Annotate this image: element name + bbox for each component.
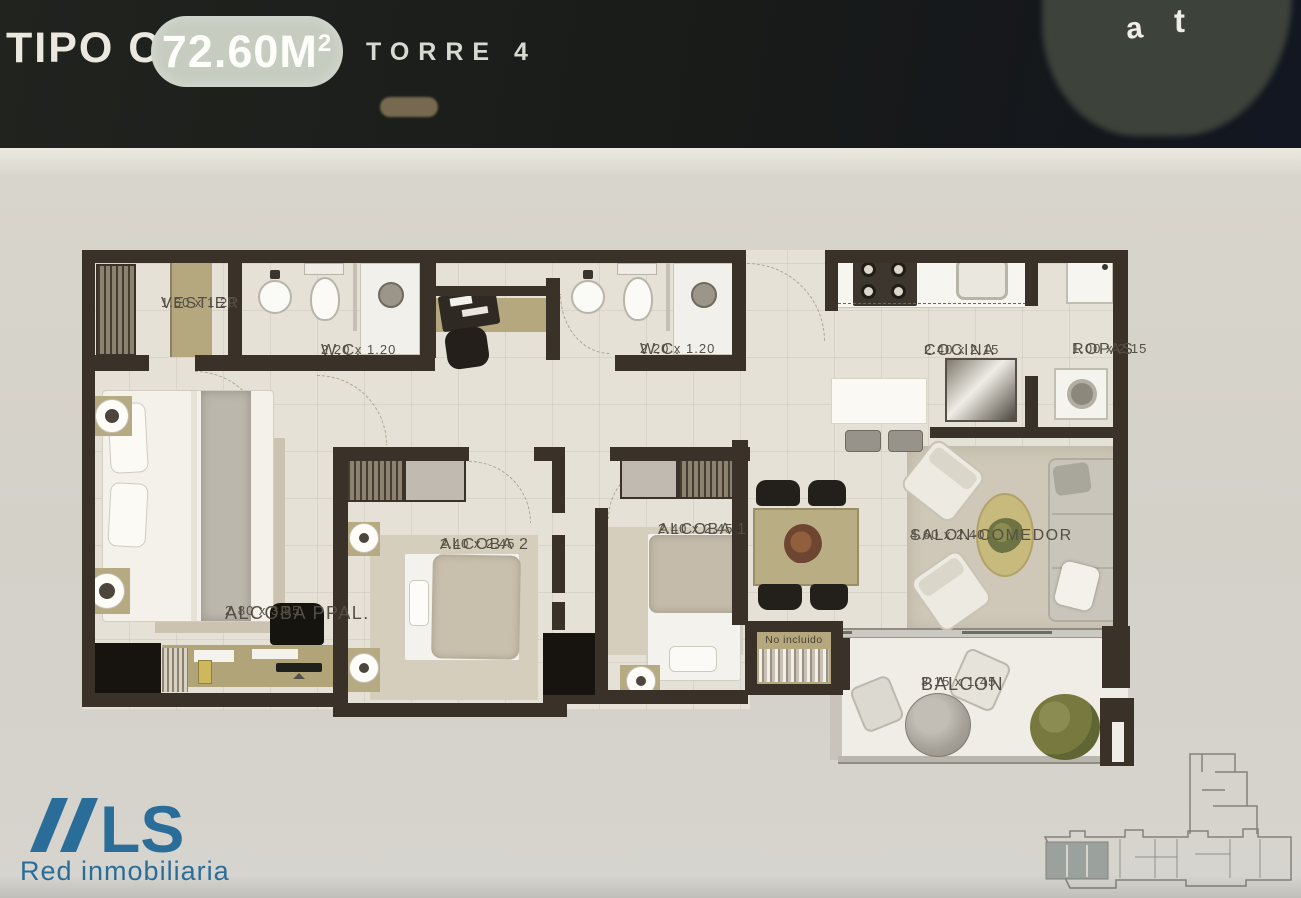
faucet bbox=[583, 270, 593, 279]
shower-head bbox=[378, 282, 404, 308]
plant bbox=[1030, 694, 1100, 760]
dining-chair bbox=[758, 584, 802, 610]
bed-blanket bbox=[649, 535, 739, 613]
book-spines bbox=[759, 649, 829, 682]
bed-blanket bbox=[201, 391, 251, 621]
wall bbox=[552, 535, 565, 593]
lamp bbox=[350, 524, 378, 552]
sofa-seam bbox=[1052, 513, 1120, 515]
balcony-railing bbox=[838, 756, 1128, 764]
dining-chair bbox=[810, 584, 848, 610]
smudge-mark bbox=[380, 97, 438, 117]
washing-machine bbox=[1054, 368, 1108, 420]
area-badge: 72.60M2 bbox=[151, 16, 343, 87]
wall bbox=[552, 447, 565, 513]
fridge bbox=[945, 358, 1017, 422]
wall bbox=[82, 250, 95, 707]
wall bbox=[732, 250, 746, 370]
pillow bbox=[669, 646, 717, 672]
gold-object bbox=[198, 660, 212, 684]
kitchen-sink bbox=[956, 258, 1008, 300]
wall bbox=[1038, 427, 1124, 438]
kitchen-table bbox=[831, 378, 927, 424]
bed-fold bbox=[191, 391, 197, 621]
toilet bbox=[310, 277, 340, 321]
wall bbox=[1025, 376, 1038, 438]
wall bbox=[195, 355, 435, 371]
brochure-photo: TIPO C 72.60M2 TORRE 4 a t bbox=[0, 0, 1301, 898]
dining-chair bbox=[756, 480, 800, 506]
wall bbox=[552, 602, 565, 630]
area-superscript: 2 bbox=[318, 30, 332, 57]
wall bbox=[420, 286, 552, 296]
lamp bbox=[90, 574, 124, 608]
wall bbox=[1102, 626, 1130, 688]
sink bbox=[258, 280, 292, 314]
lamp bbox=[96, 400, 128, 432]
wall bbox=[930, 427, 1026, 438]
wall-niche bbox=[1112, 722, 1124, 762]
glass-door-handle bbox=[962, 631, 1052, 634]
table-centerpiece bbox=[784, 524, 822, 564]
washer-door bbox=[1067, 379, 1097, 409]
burner bbox=[891, 284, 906, 299]
bed-blanket bbox=[431, 554, 521, 660]
unit-type-label: TIPO C bbox=[6, 24, 161, 73]
tv-screen bbox=[276, 663, 322, 672]
wall bbox=[825, 250, 1128, 263]
burner bbox=[861, 262, 876, 277]
toilet-tank bbox=[304, 263, 344, 275]
pillow bbox=[409, 580, 429, 626]
wall bbox=[333, 447, 348, 717]
corner-text-fragment: t bbox=[1174, 2, 1185, 40]
toilet bbox=[623, 277, 653, 321]
wardrobe-slats bbox=[162, 648, 188, 692]
burner bbox=[861, 284, 876, 299]
mls-logo-text: LS bbox=[100, 792, 184, 858]
wall bbox=[825, 263, 838, 311]
wall bbox=[337, 703, 567, 717]
wall bbox=[534, 447, 552, 461]
wall bbox=[610, 447, 750, 461]
building-key-plan bbox=[1035, 742, 1301, 892]
shower-divider bbox=[353, 263, 357, 331]
wall bbox=[337, 447, 469, 461]
page-top-highlight bbox=[0, 148, 1301, 176]
burner bbox=[891, 262, 906, 277]
floor-plan: No incluido VESTIER 1.60 x 1.20 W.C. 2.2… bbox=[82, 250, 1128, 774]
pillow bbox=[107, 482, 148, 548]
photo-vignette bbox=[0, 876, 1301, 898]
area-value: 72.60M bbox=[162, 26, 318, 77]
washer-knob bbox=[1102, 264, 1108, 270]
mls-logo: LS bbox=[16, 786, 216, 858]
console-papers bbox=[252, 649, 298, 659]
header-banner: TIPO C 72.60M2 TORRE 4 a t bbox=[0, 0, 1301, 148]
tower-label: TORRE 4 bbox=[366, 38, 537, 67]
faucet bbox=[270, 270, 280, 279]
wardrobe-hatch bbox=[96, 264, 136, 356]
not-included-note: No incluido bbox=[765, 634, 822, 646]
dining-chair bbox=[808, 480, 846, 506]
sofa-pillow bbox=[1052, 462, 1092, 497]
counter-dashed-line bbox=[838, 303, 1026, 304]
lamp bbox=[350, 654, 378, 682]
wall bbox=[1113, 250, 1128, 632]
toilet-tank bbox=[617, 263, 657, 275]
sink bbox=[571, 280, 605, 314]
shower-head bbox=[691, 282, 717, 308]
wall bbox=[546, 278, 560, 360]
stool bbox=[888, 430, 923, 452]
wall bbox=[420, 250, 436, 358]
balcony-table bbox=[905, 693, 971, 757]
stove bbox=[853, 256, 917, 306]
tv-stand bbox=[293, 673, 305, 679]
wall bbox=[1025, 250, 1038, 306]
corner-text-fragment: a bbox=[1124, 11, 1144, 47]
utility-shaft bbox=[543, 633, 595, 695]
office-chair bbox=[443, 325, 490, 370]
wall bbox=[85, 355, 149, 371]
highlighted-unit bbox=[1046, 842, 1108, 879]
corner-shadow-blob bbox=[1042, 0, 1292, 136]
wall bbox=[82, 250, 746, 263]
wall bbox=[595, 508, 608, 690]
wall bbox=[82, 693, 348, 707]
shower-divider bbox=[666, 263, 670, 331]
balcony-side-wall bbox=[830, 690, 842, 760]
stool bbox=[845, 430, 881, 452]
